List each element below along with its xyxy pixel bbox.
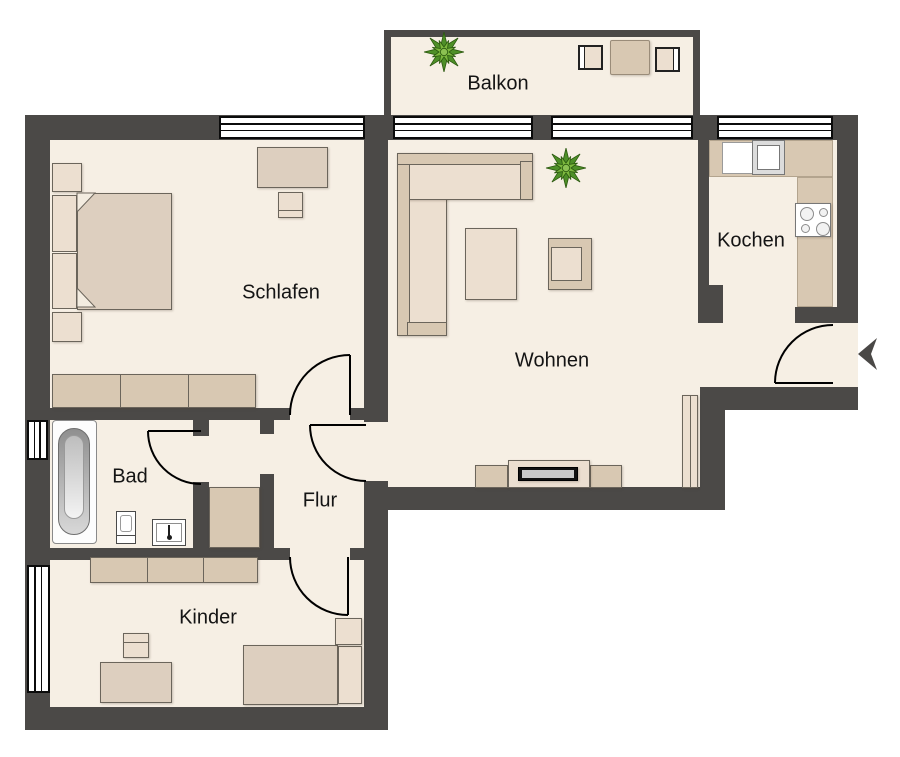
window-living-right [551,116,693,139]
kitchen-sink-drainer [722,142,753,174]
plant-icon-balcony [423,31,465,73]
wall-shelf [682,395,698,488]
armchair-seat [551,247,582,281]
hall-closet [209,487,260,548]
burner-large-tl [800,207,814,221]
wall-closet-nook-upper [260,420,274,434]
balcony-wall-right [693,30,700,115]
room-label-kinder: Kinder [179,607,237,630]
window-bath [27,420,48,460]
wall-bath-right-lower [193,482,209,549]
kids-bed [243,645,338,705]
room-label-kochen: Kochen [717,230,785,253]
room-label-balkon: Balkon [467,73,528,96]
sofa-backrest-top [397,153,533,165]
wall-bedroom-south [50,408,290,420]
wall-bottom [25,707,388,730]
entrance-arrow-icon [858,338,877,370]
wall-mid-vertical-lower [364,481,388,707]
sofa-armrest-right [520,161,533,200]
kids-nightstand [335,618,362,645]
burner-small-bl [801,224,810,233]
wall-kitchen-pier [698,285,723,323]
floor-kitchen-entry [698,140,858,387]
coffee-table [465,228,517,300]
wall-bedroom-south-right [350,408,364,420]
bedroom-dresser [52,374,256,408]
bathtub [52,420,97,544]
wall-mid-vertical-upper [364,115,388,422]
kitchen-sink-basin [757,145,780,170]
sofa-armrest-bottom [407,322,447,336]
sofa-backrest-left [397,153,410,336]
bedroom-chair [278,192,303,218]
balcony-chair-left [578,45,603,70]
wall-living-bottom [364,487,725,510]
window-kitchen [717,116,833,139]
balcony-chair-right [655,47,680,72]
kids-bed-headboard [338,646,362,704]
room-label-flur: Flur [303,490,337,513]
bath-sink [152,519,186,546]
bed-blanket-folds [74,190,104,317]
kids-desk [100,662,172,703]
bedroom-desk [257,147,328,188]
tv [518,467,578,481]
window-bedroom [219,116,365,139]
plant-icon-living [545,147,587,189]
floor-plan: Balkon Schlafen Wohnen Kochen Bad Flur K… [0,0,900,757]
wall-closet-nook-lower [260,474,274,549]
toilet [116,511,136,544]
wall-kids-north-right [350,548,364,560]
room-label-bad: Bad [112,466,148,489]
tv-lowboard-left [475,465,508,488]
kids-wardrobe [90,557,258,583]
room-label-wohnen: Wohnen [515,350,589,373]
kids-chair [123,633,149,658]
window-living-left [393,116,533,139]
room-label-schlafen: Schlafen [242,282,320,305]
wall-right-upper [837,115,858,323]
burner-large-br [816,222,830,236]
burner-small-tr [819,208,828,217]
stove [795,203,831,237]
balcony-wall-left [384,30,391,115]
balcony-table [610,40,650,75]
tv-lowboard-right [590,465,622,488]
window-kids [27,565,50,693]
wall-bath-right-upper [193,420,209,436]
wall-kitchen-left [698,140,709,285]
wall-kitchen-bottom [795,307,858,323]
nightstand-top [52,163,82,192]
kitchen-counter-right [797,177,833,307]
